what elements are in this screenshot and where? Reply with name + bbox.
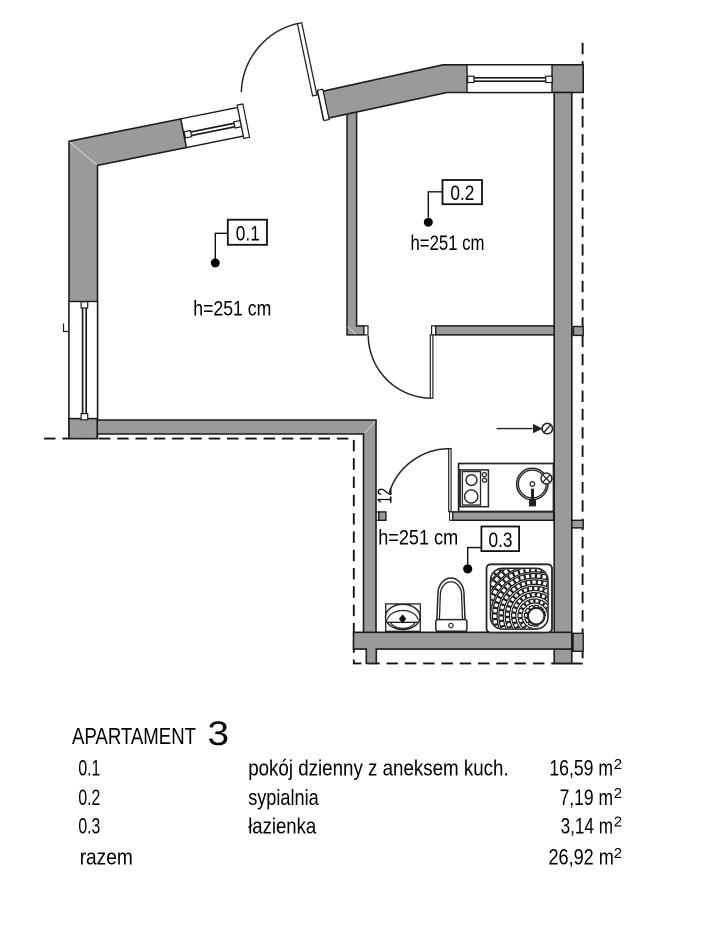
svg-text:3: 3 bbox=[208, 715, 230, 753]
svg-text:2: 2 bbox=[614, 785, 622, 802]
svg-text:0.3: 0.3 bbox=[489, 529, 513, 552]
svg-text:0.1: 0.1 bbox=[78, 756, 100, 781]
svg-text:16,59 m: 16,59 m bbox=[549, 756, 613, 781]
svg-text:sypialnia: sypialnia bbox=[248, 785, 319, 810]
svg-text:0.3: 0.3 bbox=[78, 813, 100, 838]
svg-text:0.2: 0.2 bbox=[78, 785, 100, 810]
svg-text:2: 2 bbox=[614, 845, 622, 862]
svg-text:3,14 m: 3,14 m bbox=[561, 813, 613, 838]
svg-text:h=251 cm: h=251 cm bbox=[193, 297, 271, 320]
svg-text:łazienka: łazienka bbox=[248, 813, 316, 838]
svg-text:12: 12 bbox=[375, 488, 397, 504]
svg-text:razem: razem bbox=[80, 845, 133, 870]
svg-text:h=251 cm: h=251 cm bbox=[378, 527, 458, 550]
svg-text:0.2: 0.2 bbox=[450, 182, 474, 205]
svg-text:2: 2 bbox=[614, 814, 622, 831]
svg-text:pokój dzienny z aneksem kuch.: pokój dzienny z aneksem kuch. bbox=[248, 756, 509, 781]
svg-text:7,19 m: 7,19 m bbox=[560, 785, 613, 810]
svg-text:26,92 m: 26,92 m bbox=[549, 845, 614, 870]
svg-text:h=251 cm: h=251 cm bbox=[411, 232, 485, 255]
svg-text:APARTAMENT: APARTAMENT bbox=[72, 723, 196, 749]
svg-text:2: 2 bbox=[614, 756, 622, 773]
svg-text:0.1: 0.1 bbox=[236, 223, 260, 246]
